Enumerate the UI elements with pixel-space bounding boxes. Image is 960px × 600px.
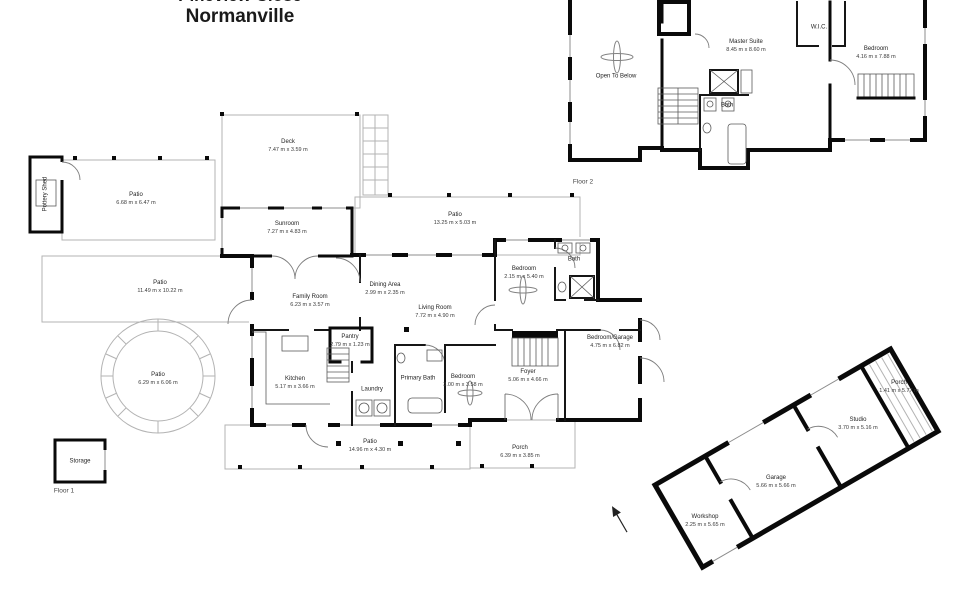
pottery-shed-walls bbox=[30, 157, 80, 232]
room-dims: 6.39 m x 3.85 m bbox=[500, 452, 539, 459]
room-dims: 5.06 m x 4.66 m bbox=[508, 376, 547, 383]
room-label-open-to-below: Open To Below bbox=[596, 73, 637, 81]
room-name: Kitchen bbox=[275, 376, 314, 384]
room-label-bedroom-s: Bedroom 3.00 m x 3.58 m bbox=[443, 374, 482, 388]
room-name: Patio bbox=[138, 372, 177, 380]
floor1-patios bbox=[42, 112, 580, 469]
room-dims: 4.75 m x 6.82 m bbox=[587, 342, 633, 349]
room-dims: 5.17 m x 3.66 m bbox=[275, 383, 314, 390]
room-name: Pantry bbox=[330, 334, 369, 342]
room-name: W.I.C. bbox=[811, 24, 827, 32]
room-dims: 8.45 m x 8.60 m bbox=[726, 46, 765, 53]
room-label-garage: Garage 5.66 m x 5.66 m bbox=[756, 475, 795, 489]
room-dims: 2.25 m x 5.65 m bbox=[685, 521, 724, 528]
bathtub-icon bbox=[408, 398, 442, 413]
stairs-icon bbox=[512, 331, 558, 366]
room-name: Porch bbox=[500, 445, 539, 453]
room-label-bedroom-n: Bedroom 2.15 m x 5.40 m bbox=[504, 266, 543, 280]
room-dims: 3.00 m x 3.58 m bbox=[443, 381, 482, 388]
room-name: Sunroom bbox=[267, 221, 306, 229]
washer-dryer-icon bbox=[356, 400, 390, 416]
room-label-patio-ne: Patio 13.25 m x 5.03 m bbox=[434, 212, 477, 226]
room-label-studio: Studio 3.70 m x 5.16 m bbox=[838, 417, 877, 431]
room-label-workshop: Workshop 2.25 m x 5.65 m bbox=[685, 514, 724, 528]
room-dims: 14.96 m x 4.30 m bbox=[349, 446, 392, 453]
room-label-primary-bath: Primary Bath bbox=[401, 375, 436, 383]
room-name: Storage bbox=[69, 458, 90, 466]
room-name: Bath bbox=[568, 256, 580, 264]
room-name: Foyer bbox=[508, 369, 547, 377]
room-dims: 7.47 m x 3.59 m bbox=[268, 146, 307, 153]
room-dims: 1.41 m x 5.77 m bbox=[879, 387, 918, 394]
room-name: Dining Area bbox=[365, 282, 404, 290]
room-name: Family Room bbox=[290, 294, 329, 302]
room-label-bedroom-f2: Bedroom 4.16 m x 7.88 m bbox=[856, 46, 895, 60]
room-name: Bedroom bbox=[504, 266, 543, 274]
room-label-pottery-shed: Pottery Shed bbox=[42, 177, 50, 212]
room-label-bath-f2: Bath bbox=[721, 102, 733, 110]
room-dims: 2.99 m x 2.35 m bbox=[365, 289, 404, 296]
room-label-bedroom-garage: Bedroom/Garage 4.75 m x 6.82 m bbox=[587, 335, 633, 349]
room-label-laundry: Laundry bbox=[361, 386, 383, 394]
room-dims: 11.49 m x 10.22 m bbox=[137, 287, 182, 294]
room-dims: 7.27 m x 4.83 m bbox=[267, 228, 306, 235]
room-name: Bath bbox=[721, 102, 733, 110]
room-name: Primary Bath bbox=[401, 375, 436, 383]
floor1-tag: Floor 1 bbox=[54, 488, 74, 495]
shower-icon bbox=[710, 70, 738, 93]
room-name: Deck bbox=[268, 139, 307, 147]
room-name: Bedroom/Garage bbox=[587, 335, 633, 343]
room-dims: 3.70 m x 5.16 m bbox=[838, 424, 877, 431]
toilet-icon bbox=[558, 282, 566, 292]
room-label-patio-s: Patio 14.96 m x 4.30 m bbox=[349, 439, 392, 453]
room-label-patio-nw: Patio 6.68 m x 6.47 m bbox=[116, 192, 155, 206]
room-label-living-room: Living Room 7.72 m x 4.90 m bbox=[415, 305, 454, 319]
room-name: Living Room bbox=[415, 305, 454, 313]
room-dims: 5.66 m x 5.66 m bbox=[756, 482, 795, 489]
room-dims: 2.79 m x 1.23 m bbox=[330, 341, 369, 348]
room-label-sunroom: Sunroom 7.27 m x 4.83 m bbox=[267, 221, 306, 235]
room-dims: 6.68 m x 6.47 m bbox=[116, 199, 155, 206]
stairs-icon bbox=[858, 74, 914, 98]
room-label-patio-w: Patio 11.49 m x 10.22 m bbox=[137, 280, 182, 294]
room-dims: 6.29 m x 6.06 m bbox=[138, 379, 177, 386]
floor2-tag: Floor 2 bbox=[573, 179, 593, 186]
room-label-family-room: Family Room 6.23 m x 3.57 m bbox=[290, 294, 329, 308]
room-name: Bedroom bbox=[856, 46, 895, 54]
room-label-master-suite: Master Suite 8.45 m x 8.60 m bbox=[726, 39, 765, 53]
room-name: Open To Below bbox=[596, 73, 637, 81]
room-label-deck: Deck 7.47 m x 3.59 m bbox=[268, 139, 307, 153]
address-line2: Normanville bbox=[140, 5, 340, 29]
floor2-walls bbox=[570, 2, 925, 168]
room-dims: 6.23 m x 3.57 m bbox=[290, 301, 329, 308]
room-name: Studio bbox=[838, 417, 877, 425]
room-label-porch-f1: Porch 6.39 m x 3.85 m bbox=[500, 445, 539, 459]
room-label-pantry: Pantry 2.79 m x 1.23 m bbox=[330, 334, 369, 348]
bathtub-icon bbox=[728, 124, 746, 164]
room-name: Patio bbox=[116, 192, 155, 200]
room-label-patio-round: Patio 6.29 m x 6.06 m bbox=[138, 372, 177, 386]
room-label-foyer: Foyer 5.06 m x 4.66 m bbox=[508, 369, 547, 383]
room-label-bath-f1: Bath bbox=[568, 256, 580, 264]
room-name: Patio bbox=[349, 439, 392, 447]
room-label-dining-area: Dining Area 2.99 m x 2.35 m bbox=[365, 282, 404, 296]
stairs-icon bbox=[658, 88, 698, 124]
room-label-kitchen: Kitchen 5.17 m x 3.66 m bbox=[275, 376, 314, 390]
plan-header: Pineview Close Normanville bbox=[140, 0, 340, 29]
room-label-storage: Storage bbox=[69, 458, 90, 466]
vanity-icon bbox=[558, 243, 590, 253]
room-dims: 7.72 m x 4.90 m bbox=[415, 312, 454, 319]
room-name: Bedroom bbox=[443, 374, 482, 382]
north-arrow-icon bbox=[608, 504, 631, 534]
toilet-icon bbox=[397, 353, 405, 363]
toilet-icon bbox=[703, 123, 711, 133]
room-dims: 2.15 m x 5.40 m bbox=[504, 273, 543, 280]
column bbox=[404, 327, 409, 332]
room-name: Patio bbox=[434, 212, 477, 220]
room-name: Workshop bbox=[685, 514, 724, 522]
ceiling-fan-icon bbox=[601, 41, 633, 73]
room-name: Patio bbox=[137, 280, 182, 288]
room-name: Pottery Shed bbox=[42, 177, 50, 212]
room-label-porch-outbuilding: Porch 1.41 m x 5.77 m bbox=[879, 380, 918, 394]
kitchen-counter bbox=[252, 332, 330, 404]
room-name: Laundry bbox=[361, 386, 383, 394]
room-dims: 4.16 m x 7.88 m bbox=[856, 53, 895, 60]
kitchen-island bbox=[282, 336, 308, 351]
room-name: Garage bbox=[756, 475, 795, 483]
shower-icon bbox=[570, 276, 594, 298]
room-name: Master Suite bbox=[726, 39, 765, 47]
floor-plan-page: Pineview Close Normanville Open To Below… bbox=[0, 0, 960, 600]
floor-plan-drawing bbox=[0, 0, 960, 600]
room-label-wic: W.I.C. bbox=[811, 24, 827, 32]
room-name: Porch bbox=[879, 380, 918, 388]
room-dims: 13.25 m x 5.03 m bbox=[434, 219, 477, 226]
ceiling-fan-icon bbox=[509, 276, 537, 304]
